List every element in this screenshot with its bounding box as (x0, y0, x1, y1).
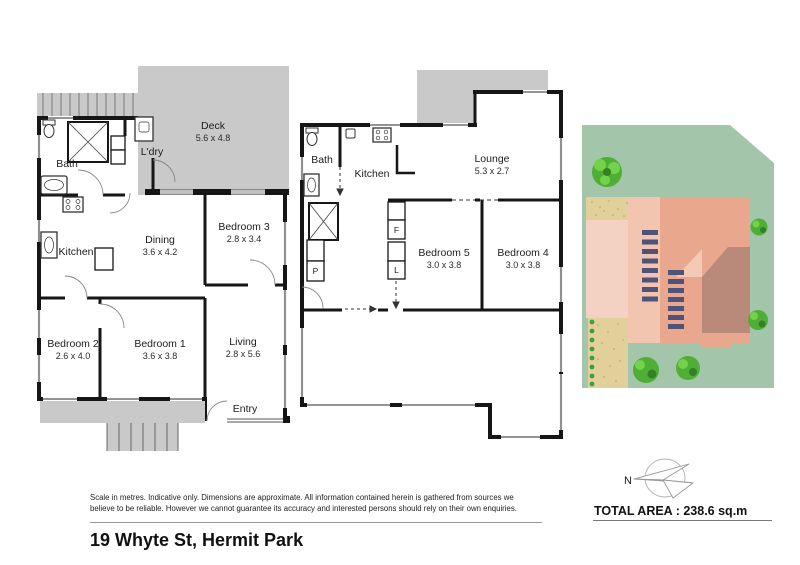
room-label-bath: Bath (56, 158, 78, 170)
laundry-tub (135, 117, 153, 141)
room-dims-bedroom1: 3.6 x 3.8 (143, 351, 178, 361)
toilet (43, 120, 55, 138)
tree (633, 357, 659, 383)
shower (68, 122, 108, 162)
floor-plan-1: Deck 5.6 x 4.8 Bath L'dry Kitchen Dining… (35, 60, 293, 462)
deck-surface-2 (417, 70, 548, 125)
room-label-bath2: Bath (311, 154, 333, 166)
room-label-ldry: L'dry (141, 146, 164, 158)
room-label-lounge: Lounge (474, 153, 509, 165)
room-dims-living: 2.8 x 5.6 (226, 349, 261, 359)
room-label-deck: Deck (201, 120, 226, 132)
tree (748, 310, 768, 330)
sand-bottom (588, 318, 628, 388)
pantry-label: P (313, 266, 319, 276)
room-dims-bedroom2: 2.6 x 4.0 (56, 351, 91, 361)
floor-plan-2: Bath Kitchen Lounge 5.3 x 2.7 Bedroom 5 … (297, 62, 569, 454)
room-label-dining: Dining (145, 234, 175, 246)
stove (63, 197, 83, 212)
room-label-entry: Entry (233, 403, 258, 415)
deck-boards-strip (37, 93, 138, 116)
room-label-kitchen: Kitchen (58, 246, 93, 258)
shower-2 (309, 203, 338, 240)
total-area-rule (593, 520, 772, 521)
north-label: N (624, 475, 632, 487)
tree (751, 219, 768, 236)
room-dims-bedroom3: 2.8 x 3.4 (227, 234, 262, 244)
basin-2 (304, 174, 319, 196)
verandah-rail (227, 416, 290, 423)
tree (592, 157, 622, 187)
room-dims-dining: 3.6 x 4.2 (143, 247, 178, 257)
room-dims-bedroom4: 3.0 x 3.8 (506, 260, 541, 270)
room-dims-lounge: 5.3 x 2.7 (475, 166, 510, 176)
stove-2 (373, 128, 391, 142)
disclaimer-rule (90, 522, 542, 523)
pantry-cupboard (95, 248, 113, 270)
room-dims-deck: 5.6 x 4.8 (196, 133, 231, 143)
room-label-bedroom5: Bedroom 5 (418, 247, 470, 259)
fixtures-2 (304, 128, 405, 281)
room-label-bedroom2: Bedroom 2 (47, 338, 99, 350)
disclaimer: Scale in metres. Indicative only. Dimens… (90, 493, 552, 515)
tree (676, 356, 700, 380)
kitchen-sink (41, 232, 57, 258)
room-label-kitchen2: Kitchen (354, 168, 389, 180)
room-label-living: Living (229, 336, 257, 348)
room-label-bedroom1: Bedroom 1 (134, 338, 186, 350)
compass-needle (634, 464, 693, 498)
compass: N (616, 452, 700, 508)
linen-label: L (394, 265, 399, 275)
page-title: 19 Whyte St, Hermit Park (90, 530, 303, 551)
room-dims-bedroom5: 3.0 x 3.8 (427, 260, 462, 270)
bathtub (41, 176, 67, 194)
linen-closet (111, 136, 125, 164)
house-footprint (628, 197, 750, 348)
room-label-bedroom4: Bedroom 4 (497, 247, 549, 259)
kitchen-sink-2 (346, 129, 355, 138)
room-label-bedroom3: Bedroom 3 (218, 221, 270, 233)
side-path (586, 218, 628, 318)
fridge-label: F (394, 225, 399, 235)
disclaimer-line-1: Scale in metres. Indicative only. Dimens… (90, 493, 552, 504)
toilet-2 (306, 128, 318, 146)
doors (65, 160, 275, 421)
disclaimer-line-2: believe to be reliable. However we canno… (90, 504, 552, 515)
total-area: TOTAL AREA : 238.6 sq.m (594, 504, 747, 518)
doors-2 (302, 287, 323, 308)
opening-arrows (337, 167, 498, 312)
front-deck (40, 401, 205, 451)
site-plan (582, 125, 774, 388)
